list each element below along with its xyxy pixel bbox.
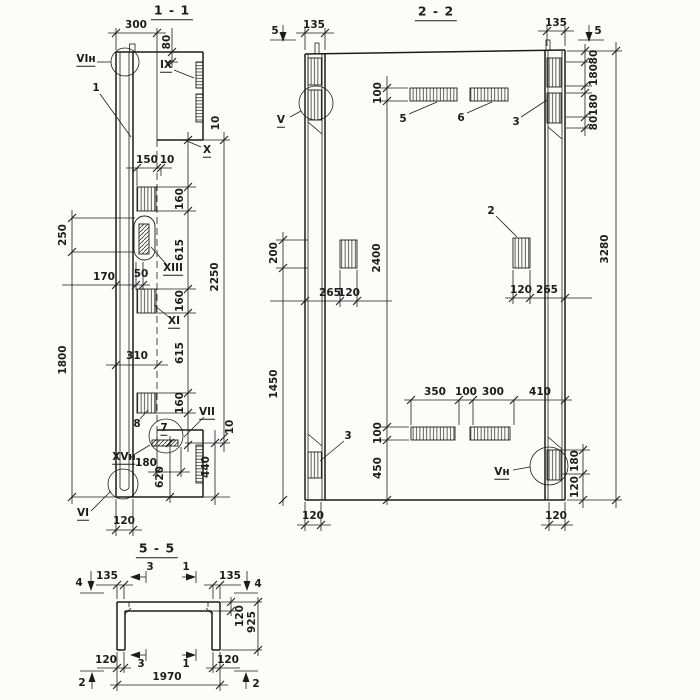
part-label-3-bottom: 3 [344,431,351,442]
dim-310: 310 [126,351,148,362]
dim-450: 450 [373,457,384,479]
dim-100-top: 100 [373,82,384,104]
dim-120-slab: 120 [235,605,246,627]
dim-180-b: 180 [589,94,600,116]
part-label-8: 8 [133,419,140,430]
dim-620: 620 [155,466,166,488]
callout-vi: VI [77,508,89,521]
dim-350: 350 [424,387,446,398]
callout-ix: IX [160,60,172,73]
dim-170: 170 [93,272,115,283]
section-2-2-title: 2 - 2 [415,5,457,21]
drawing-canvas: 1 - 1 300 80 VIн 1 IX X 10 150 10 250 18… [0,0,700,700]
dim-180-c: 180 [570,450,581,472]
dim-135-left: 135 [303,20,325,31]
dim-615-a: 615 [175,239,186,261]
dim-80: 80 [162,35,173,50]
dim-1450: 1450 [269,369,280,398]
dim-150: 150 [136,155,158,166]
callout-xvn: XVн [112,452,135,465]
dim-135-left-55: 135 [96,571,118,582]
section-marker-4-right: 4 [254,579,261,590]
section-marker-2-right: 2 [252,679,259,690]
section-5-5-title: 5 - 5 [136,542,178,558]
section-marker-4-left: 4 [75,578,82,589]
dim-120-bottom-right-55: 120 [217,655,239,666]
dim-615-b: 615 [175,342,186,364]
dim-200: 200 [269,242,280,264]
dim-120-c: 120 [570,476,581,498]
dim-160-c: 160 [175,392,186,414]
cut-marker-3-top: 3 [146,562,153,573]
dim-135-right-55: 135 [219,571,241,582]
dim-300-c: 300 [482,387,504,398]
dim-160-a: 160 [175,188,186,210]
dim-160-b: 160 [175,290,186,312]
section-marker-5-right: 5 [594,26,601,37]
dim-120-left: 120 [338,288,360,299]
dim-100-bottom: 100 [373,422,384,444]
dim-10-step: 10 [160,155,175,166]
section-marker-2-left: 2 [78,678,85,689]
dim-10-top: 10 [211,116,222,131]
dim-80-a: 80 [589,50,600,65]
dim-120-bottom: 120 [113,516,135,527]
dim-300: 300 [125,20,147,31]
dim-50: 50 [134,269,149,280]
section-1-1-title: 1 - 1 [151,4,193,20]
cut-marker-3-bottom: 3 [137,659,144,670]
dim-135-right: 135 [545,18,567,29]
dim-2250: 2250 [210,262,221,291]
section-marker-5-left: 5 [271,26,278,37]
section-5-5-ticks [113,581,262,689]
part-label-6: 6 [457,113,464,124]
dim-265-right: 265 [536,285,558,296]
callout-vii: VII [199,407,215,420]
dim-250: 250 [58,224,69,246]
part-label-1: 1 [92,83,99,94]
cut-marker-1-bottom: 1 [182,659,189,670]
dim-2400: 2400 [372,243,383,272]
dim-10-vii: 10 [225,420,236,435]
dim-925: 925 [247,611,258,633]
dim-440: 440 [201,456,212,478]
part-label-5: 5 [399,114,406,125]
callout-v: V [277,115,285,128]
cut-marker-1-top: 1 [182,562,189,573]
dim-1800: 1800 [58,345,69,374]
dim-120-right: 120 [510,285,532,296]
dim-3280: 3280 [600,234,611,263]
dim-120-bottom-left-55: 120 [95,655,117,666]
dim-120-bottom-right: 120 [545,511,567,522]
dim-100-c: 100 [455,387,477,398]
callout-vn: Vн [494,467,509,480]
part-label-3-top: 3 [512,117,519,128]
callout-xi: XI [168,316,180,329]
dim-410: 410 [529,387,551,398]
part-label-2: 2 [487,206,494,217]
dim-1970: 1970 [152,672,181,683]
callout-x: X [203,145,211,158]
dim-120-bottom-left: 120 [302,511,324,522]
dim-180-a: 180 [589,64,600,86]
callout-xiii: XIII [163,263,183,276]
part-label-7: 7 [160,423,167,436]
dim-80-b: 80 [589,116,600,131]
callout-vin: VIн [76,54,95,67]
